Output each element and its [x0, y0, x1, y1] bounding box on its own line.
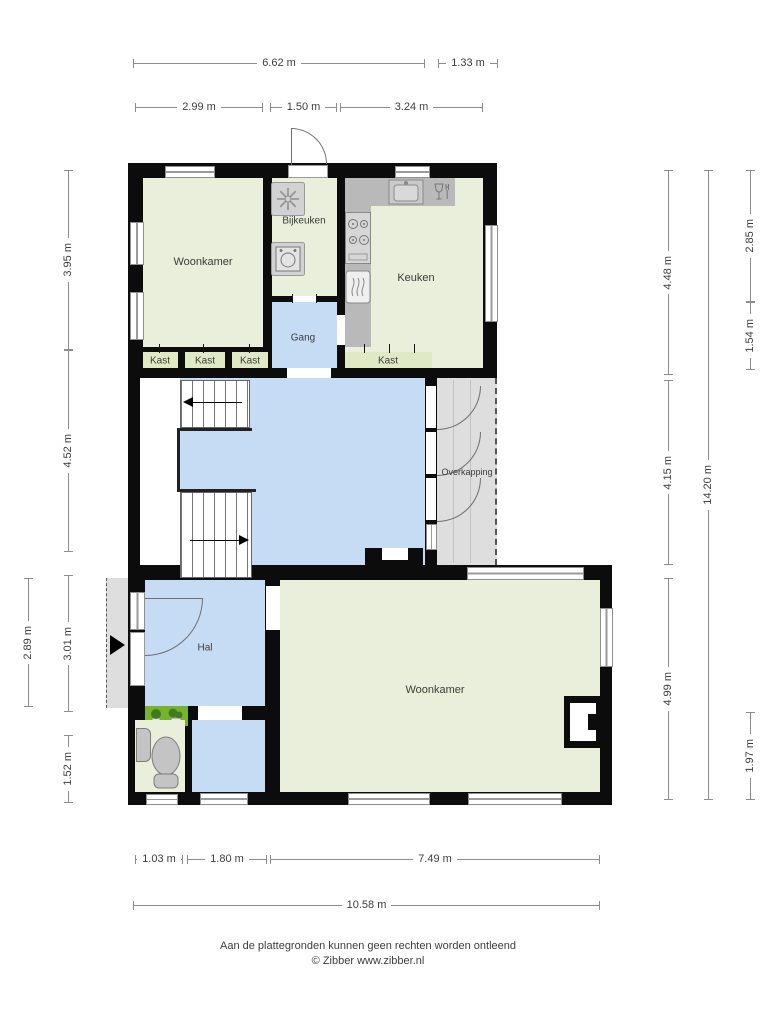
- dim-right-outer-mid: 1.54 m: [743, 302, 757, 370]
- sink-icon: [388, 179, 424, 205]
- label-kast-4: Kast: [378, 356, 398, 367]
- window-keuken-east: [485, 225, 498, 322]
- window-vestibule-south: [200, 793, 248, 805]
- doorway-overkapping-2: [426, 432, 436, 474]
- window-woonkamer-bottom-north: [467, 567, 584, 580]
- label-overkapping: Overkapping: [441, 467, 492, 477]
- dim-top-keuken: 3.24 m: [340, 101, 483, 113]
- dim-bottom-right: 7.49 m: [270, 853, 600, 865]
- label-kast-1: Kast: [150, 356, 170, 367]
- window-woonkamer-top-west-2: [130, 292, 144, 340]
- stove-icon: [345, 212, 371, 264]
- window-woonkamer-top-north: [165, 166, 215, 178]
- stair-arrow-icon: [239, 535, 249, 545]
- dim-top-woonkamer: 2.99 m: [135, 101, 263, 113]
- stair-arrow-line: [190, 540, 240, 541]
- entrance-arrow-icon: [110, 635, 125, 655]
- label-woonkamer-top: Woonkamer: [173, 256, 232, 268]
- kast-door-tick: [203, 344, 204, 353]
- window-woonkamer-bottom-east: [600, 608, 613, 667]
- window-stairhall-east: [426, 524, 437, 550]
- freezer-icon: [271, 182, 305, 216]
- label-bijkeuken: Bijkeuken: [282, 216, 325, 227]
- label-hal: Hal: [197, 643, 212, 654]
- window-woonkamer-top-west-1: [130, 222, 144, 265]
- label-kast-2: Kast: [195, 356, 215, 367]
- disclaimer-text: Aan de plattegronden kunnen geen rechten…: [0, 940, 736, 952]
- front-door: [130, 632, 145, 686]
- toilet-icon: [148, 734, 184, 790]
- window-woonkamer-south-2: [468, 793, 562, 805]
- dim-right-upper: 4.48 m: [661, 170, 675, 375]
- dim-right-outer-lower: 1.97 m: [743, 712, 757, 800]
- window-toilet-south: [146, 794, 178, 805]
- dim-top-total: 6.62 m: [133, 57, 425, 69]
- back-door-arc: [291, 128, 327, 164]
- window-keuken-north: [395, 166, 430, 178]
- label-woonkamer-bottom: Woonkamer: [405, 684, 464, 696]
- doorway-overkapping-1: [426, 386, 436, 428]
- kast-door-tick: [414, 344, 415, 353]
- room-vestibule: [192, 720, 265, 792]
- label-gang: Gang: [291, 333, 315, 344]
- dim-right-middle: 4.15 m: [661, 380, 675, 565]
- stair-arrow-icon: [183, 397, 193, 407]
- back-door-bijkeuken: [288, 165, 328, 178]
- stair-wall: [177, 428, 180, 492]
- doorway-hal-vestibule: [198, 706, 242, 720]
- dim-top-overkapping: 1.33 m: [438, 57, 498, 69]
- stair-wall: [180, 428, 252, 431]
- glassware-icon: [432, 182, 452, 202]
- label-keuken: Keuken: [397, 272, 434, 284]
- chimney-notch: [382, 548, 408, 560]
- stair-void: [140, 378, 180, 565]
- dim-right-total: 14.20 m: [701, 170, 715, 800]
- copyright-text: © Zibber www.zibber.nl: [0, 955, 736, 967]
- kast-door-tick: [389, 344, 390, 353]
- dim-left-middle: 4.52 m: [61, 350, 75, 552]
- washer-icon: [271, 242, 305, 276]
- kast-door-tick: [159, 344, 160, 353]
- doorway-overkapping-3: [426, 478, 436, 520]
- dim-top-bijkeuken: 1.50 m: [270, 101, 337, 113]
- dim-left-toilet: 1.52 m: [61, 735, 75, 803]
- kast-door-tick: [249, 344, 250, 353]
- window-woonkamer-south-1: [348, 793, 430, 805]
- doorway-gang-stairhall: [287, 368, 331, 378]
- dim-bottom-mid: 1.80 m: [187, 853, 267, 865]
- floor-plan-page: Woonkamer Bijkeuken Keuken Gang Kast Kas…: [0, 0, 768, 1024]
- doorway-bijkeuken-gang: [292, 296, 317, 302]
- label-kast-3: Kast: [240, 356, 260, 367]
- dim-bottom-total: 10.58 m: [133, 899, 600, 911]
- stair-arrow-line: [192, 402, 242, 403]
- dim-left-outer: 2.89 m: [21, 578, 35, 707]
- kast-door-tick: [364, 344, 365, 353]
- fireplace-flue: [588, 714, 598, 730]
- front-door-sidelight: [130, 592, 145, 630]
- dim-left-upper: 3.95 m: [61, 170, 75, 350]
- dishwasher-icon: [345, 270, 371, 304]
- dim-left-hal: 3.01 m: [61, 575, 75, 712]
- stair-wall: [180, 489, 256, 492]
- doorway-hal-woonkamer: [266, 586, 280, 630]
- dim-right-lower: 4.99 m: [661, 578, 675, 800]
- dim-bottom-left: 1.03 m: [135, 853, 183, 865]
- dim-right-outer-upper: 2.85 m: [743, 170, 757, 302]
- doorway-gang-keuken: [337, 315, 345, 345]
- door-tick: [316, 294, 317, 303]
- door-tick: [292, 294, 293, 303]
